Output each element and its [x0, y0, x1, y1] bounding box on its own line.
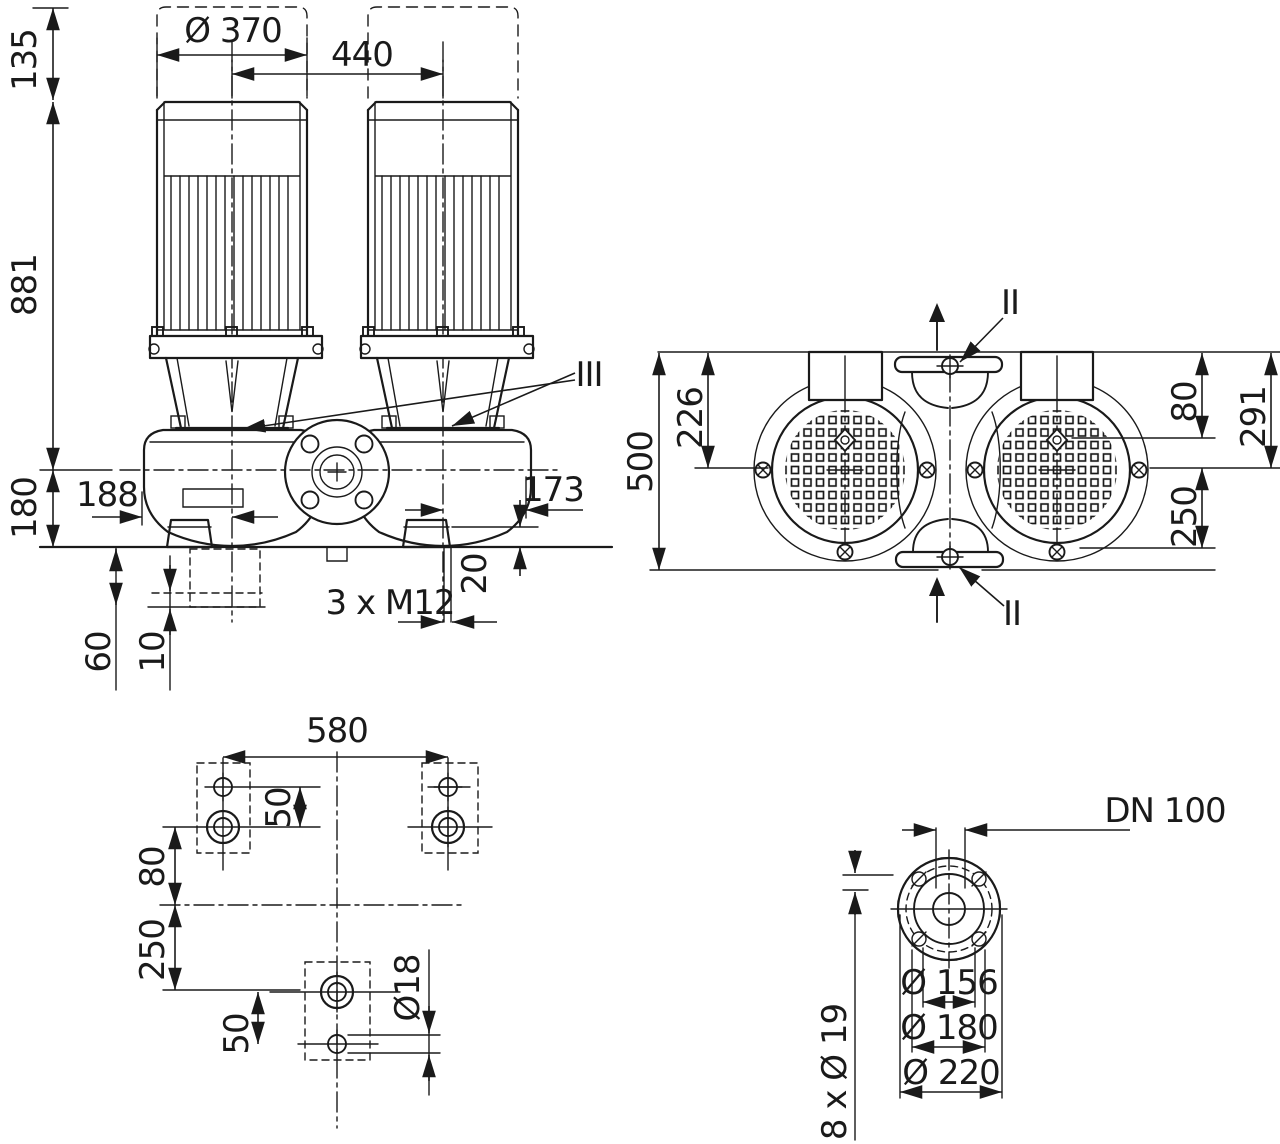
vent-bottom-label: II — [1003, 594, 1021, 634]
vent-top-label: II — [1001, 283, 1019, 323]
dim-80-top-label: 80 — [1165, 381, 1205, 422]
nominal-diameter-label: DN 100 — [1104, 791, 1225, 831]
flange-view: DN 100 8 x Ø 19 Ø 156 Ø 180 Ø 220 — [815, 791, 1226, 1140]
dimension-80-foundation: 80 — [133, 827, 175, 905]
pump-axis-lines — [232, 42, 443, 622]
dim-motor-diameter-label: Ø 370 — [184, 11, 281, 51]
dimension-total-height: 881 — [5, 102, 53, 470]
dim-135-label: 135 — [5, 29, 45, 91]
left-casing-step — [183, 489, 243, 507]
dim-226-label: 226 — [671, 387, 711, 449]
dim-220-label: Ø 220 — [902, 1053, 999, 1093]
dim-440-label: 440 — [331, 35, 393, 75]
anchor-bolt-label: 3 x M12 — [326, 583, 455, 623]
dimension-hole-diameter: Ø18 — [348, 950, 440, 1095]
dim-80-foundation-label: 80 — [133, 846, 173, 887]
flow-arrow-bottom — [929, 577, 945, 622]
dim-173-label: 173 — [522, 470, 584, 510]
foundation-axes — [160, 752, 462, 1128]
bottom-bolt-group — [270, 962, 400, 1060]
dimension-226: 226 — [671, 353, 768, 468]
dim-188-label: 188 — [76, 475, 138, 515]
dim-291-label: 291 — [1234, 386, 1274, 448]
dim-500-label: 500 — [621, 431, 661, 493]
dimension-plate-thickness: 10 — [133, 556, 173, 690]
dim-180-label: 180 — [5, 477, 45, 539]
foundation-view: 580 50 80 — [133, 711, 492, 1128]
dimension-suction-offset: 188 — [76, 475, 278, 525]
vent-callout-top: II — [960, 283, 1019, 362]
dim-20-label: 20 — [455, 553, 495, 594]
dimension-580: 580 — [223, 711, 448, 870]
top-view: II II 500 226 80 291 — [621, 283, 1280, 634]
dim-60-label: 60 — [79, 631, 119, 672]
dim-10-label: 10 — [133, 631, 173, 672]
vent-callout-bottom: II — [959, 567, 1021, 634]
foundation-outline — [190, 549, 260, 607]
technical-drawing-page: 135 Ø 370 440 881 180 — [0, 0, 1280, 1144]
seal-reference-label: III — [575, 355, 602, 395]
center-flange — [285, 420, 389, 524]
dim-50-bottom-label: 50 — [217, 1013, 257, 1054]
pump-dimensional-drawing: 135 Ø 370 440 881 180 — [0, 0, 1280, 1144]
dim-180-label: Ø 180 — [900, 1008, 997, 1048]
dim-250-foundation-label: 250 — [133, 919, 173, 981]
dim-580-label: 580 — [306, 711, 368, 751]
dim-50-top-label: 50 — [259, 787, 299, 828]
dimension-anchor-depth: 60 — [79, 547, 119, 690]
bolt-holes-label: 8 x Ø 19 — [815, 1004, 855, 1140]
dimension-50-bottom: 50 — [217, 992, 258, 1055]
flow-arrow-top — [929, 303, 945, 350]
flange-face — [891, 850, 1007, 968]
dimension-50-top: 50 — [259, 787, 300, 829]
dim-hole-diameter-label: Ø18 — [388, 954, 428, 1021]
dim-156-label: Ø 156 — [900, 963, 997, 1003]
dim-250-right-label: 250 — [1165, 486, 1205, 548]
dim-881-label: 881 — [5, 254, 45, 316]
right-bolt-group — [408, 763, 492, 853]
bolt-holes-callout: 8 x Ø 19 — [815, 850, 893, 1140]
front-view: 135 Ø 370 440 881 180 — [5, 7, 612, 690]
dimension-135: 135 — [5, 8, 68, 100]
dimension-discharge-offset: 173 — [405, 470, 584, 518]
drain-tab — [327, 547, 347, 561]
dimension-250-foundation: 250 — [133, 905, 300, 990]
